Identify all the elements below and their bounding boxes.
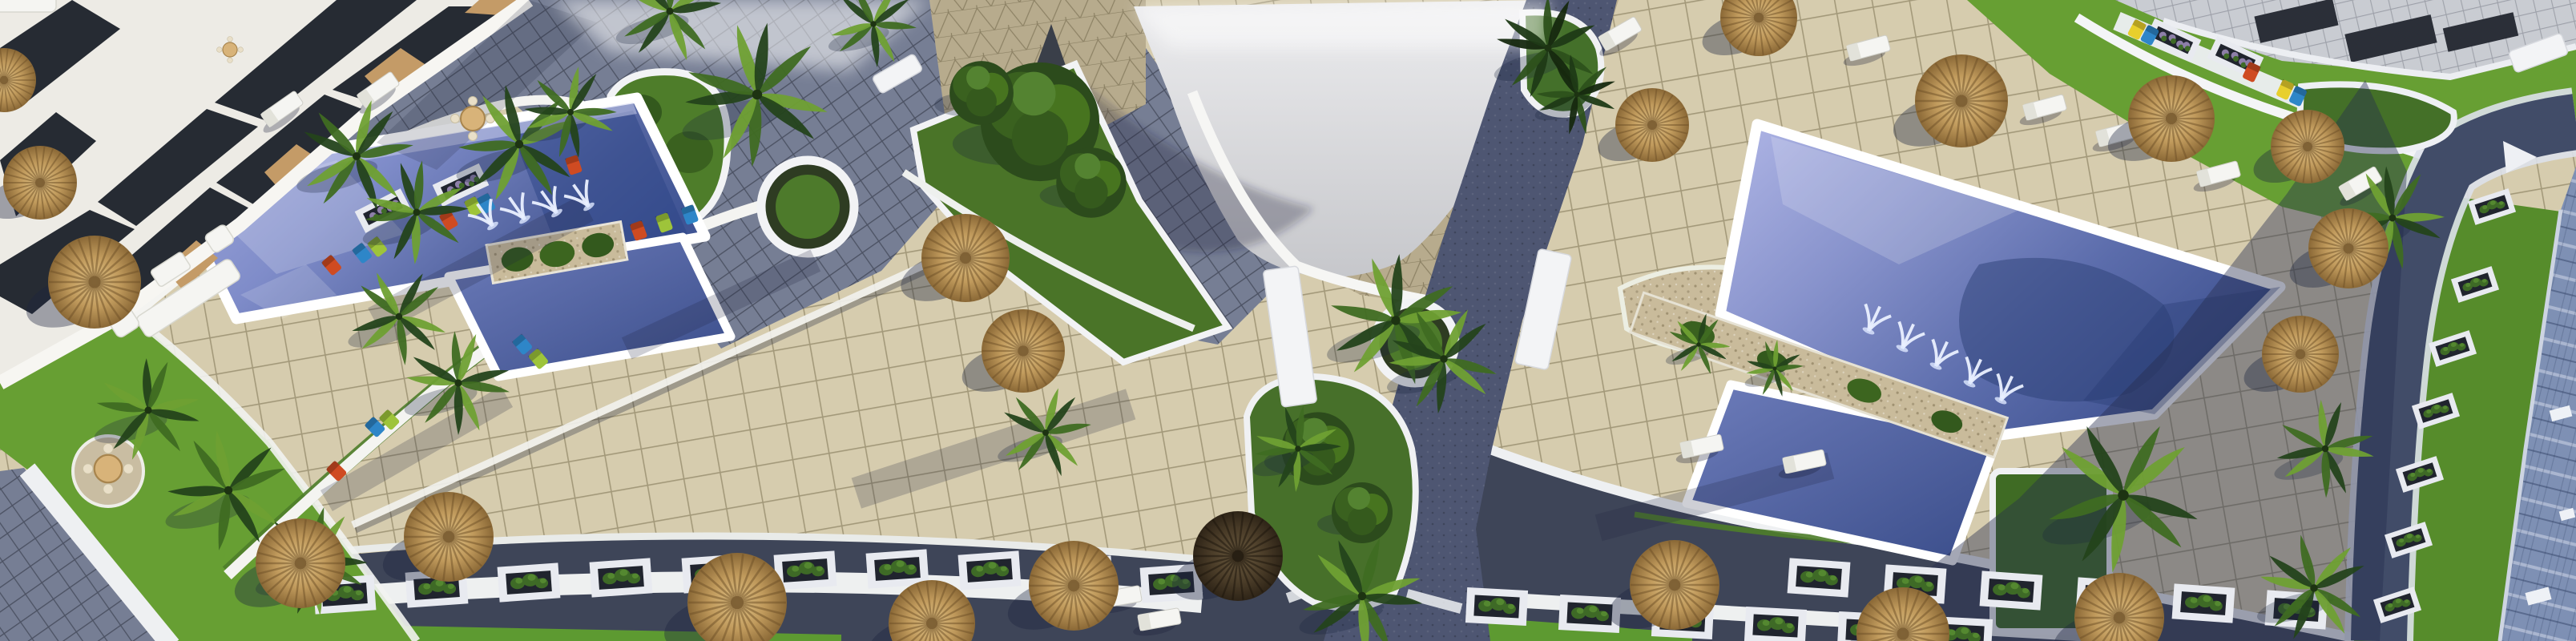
thatch-umbrella (2262, 316, 2339, 393)
thatch-umbrella (1915, 54, 2008, 147)
thatch-umbrella (48, 236, 141, 329)
thatch-umbrella (3, 146, 77, 220)
dark-umbrella (1193, 511, 1283, 601)
thatch-umbrella (1029, 541, 1119, 631)
planter-box (2172, 583, 2235, 623)
thatch-umbrella (982, 309, 1065, 393)
thatch-umbrella (256, 518, 345, 608)
circular-planter-b (761, 160, 854, 253)
resort-aerial-scene (0, 0, 2576, 641)
thatch-umbrella (1630, 540, 1719, 630)
planter-box (1744, 607, 1807, 641)
thatch-umbrella (2271, 110, 2344, 183)
planter-box (958, 550, 1022, 590)
thatch-umbrella (2128, 75, 2215, 162)
sun-glare-canopy (1134, 0, 1550, 48)
planter-box (590, 558, 653, 597)
planter-box (1788, 558, 1851, 597)
thatch-umbrella (404, 492, 494, 582)
thatch-umbrella (1615, 88, 1689, 162)
planter-box (1980, 570, 2043, 610)
planter-box (1465, 587, 1528, 626)
thatch-umbrella (921, 214, 1010, 302)
planter-box (498, 562, 561, 602)
aerial-render (0, 0, 2576, 641)
thatch-umbrella (2308, 208, 2389, 288)
